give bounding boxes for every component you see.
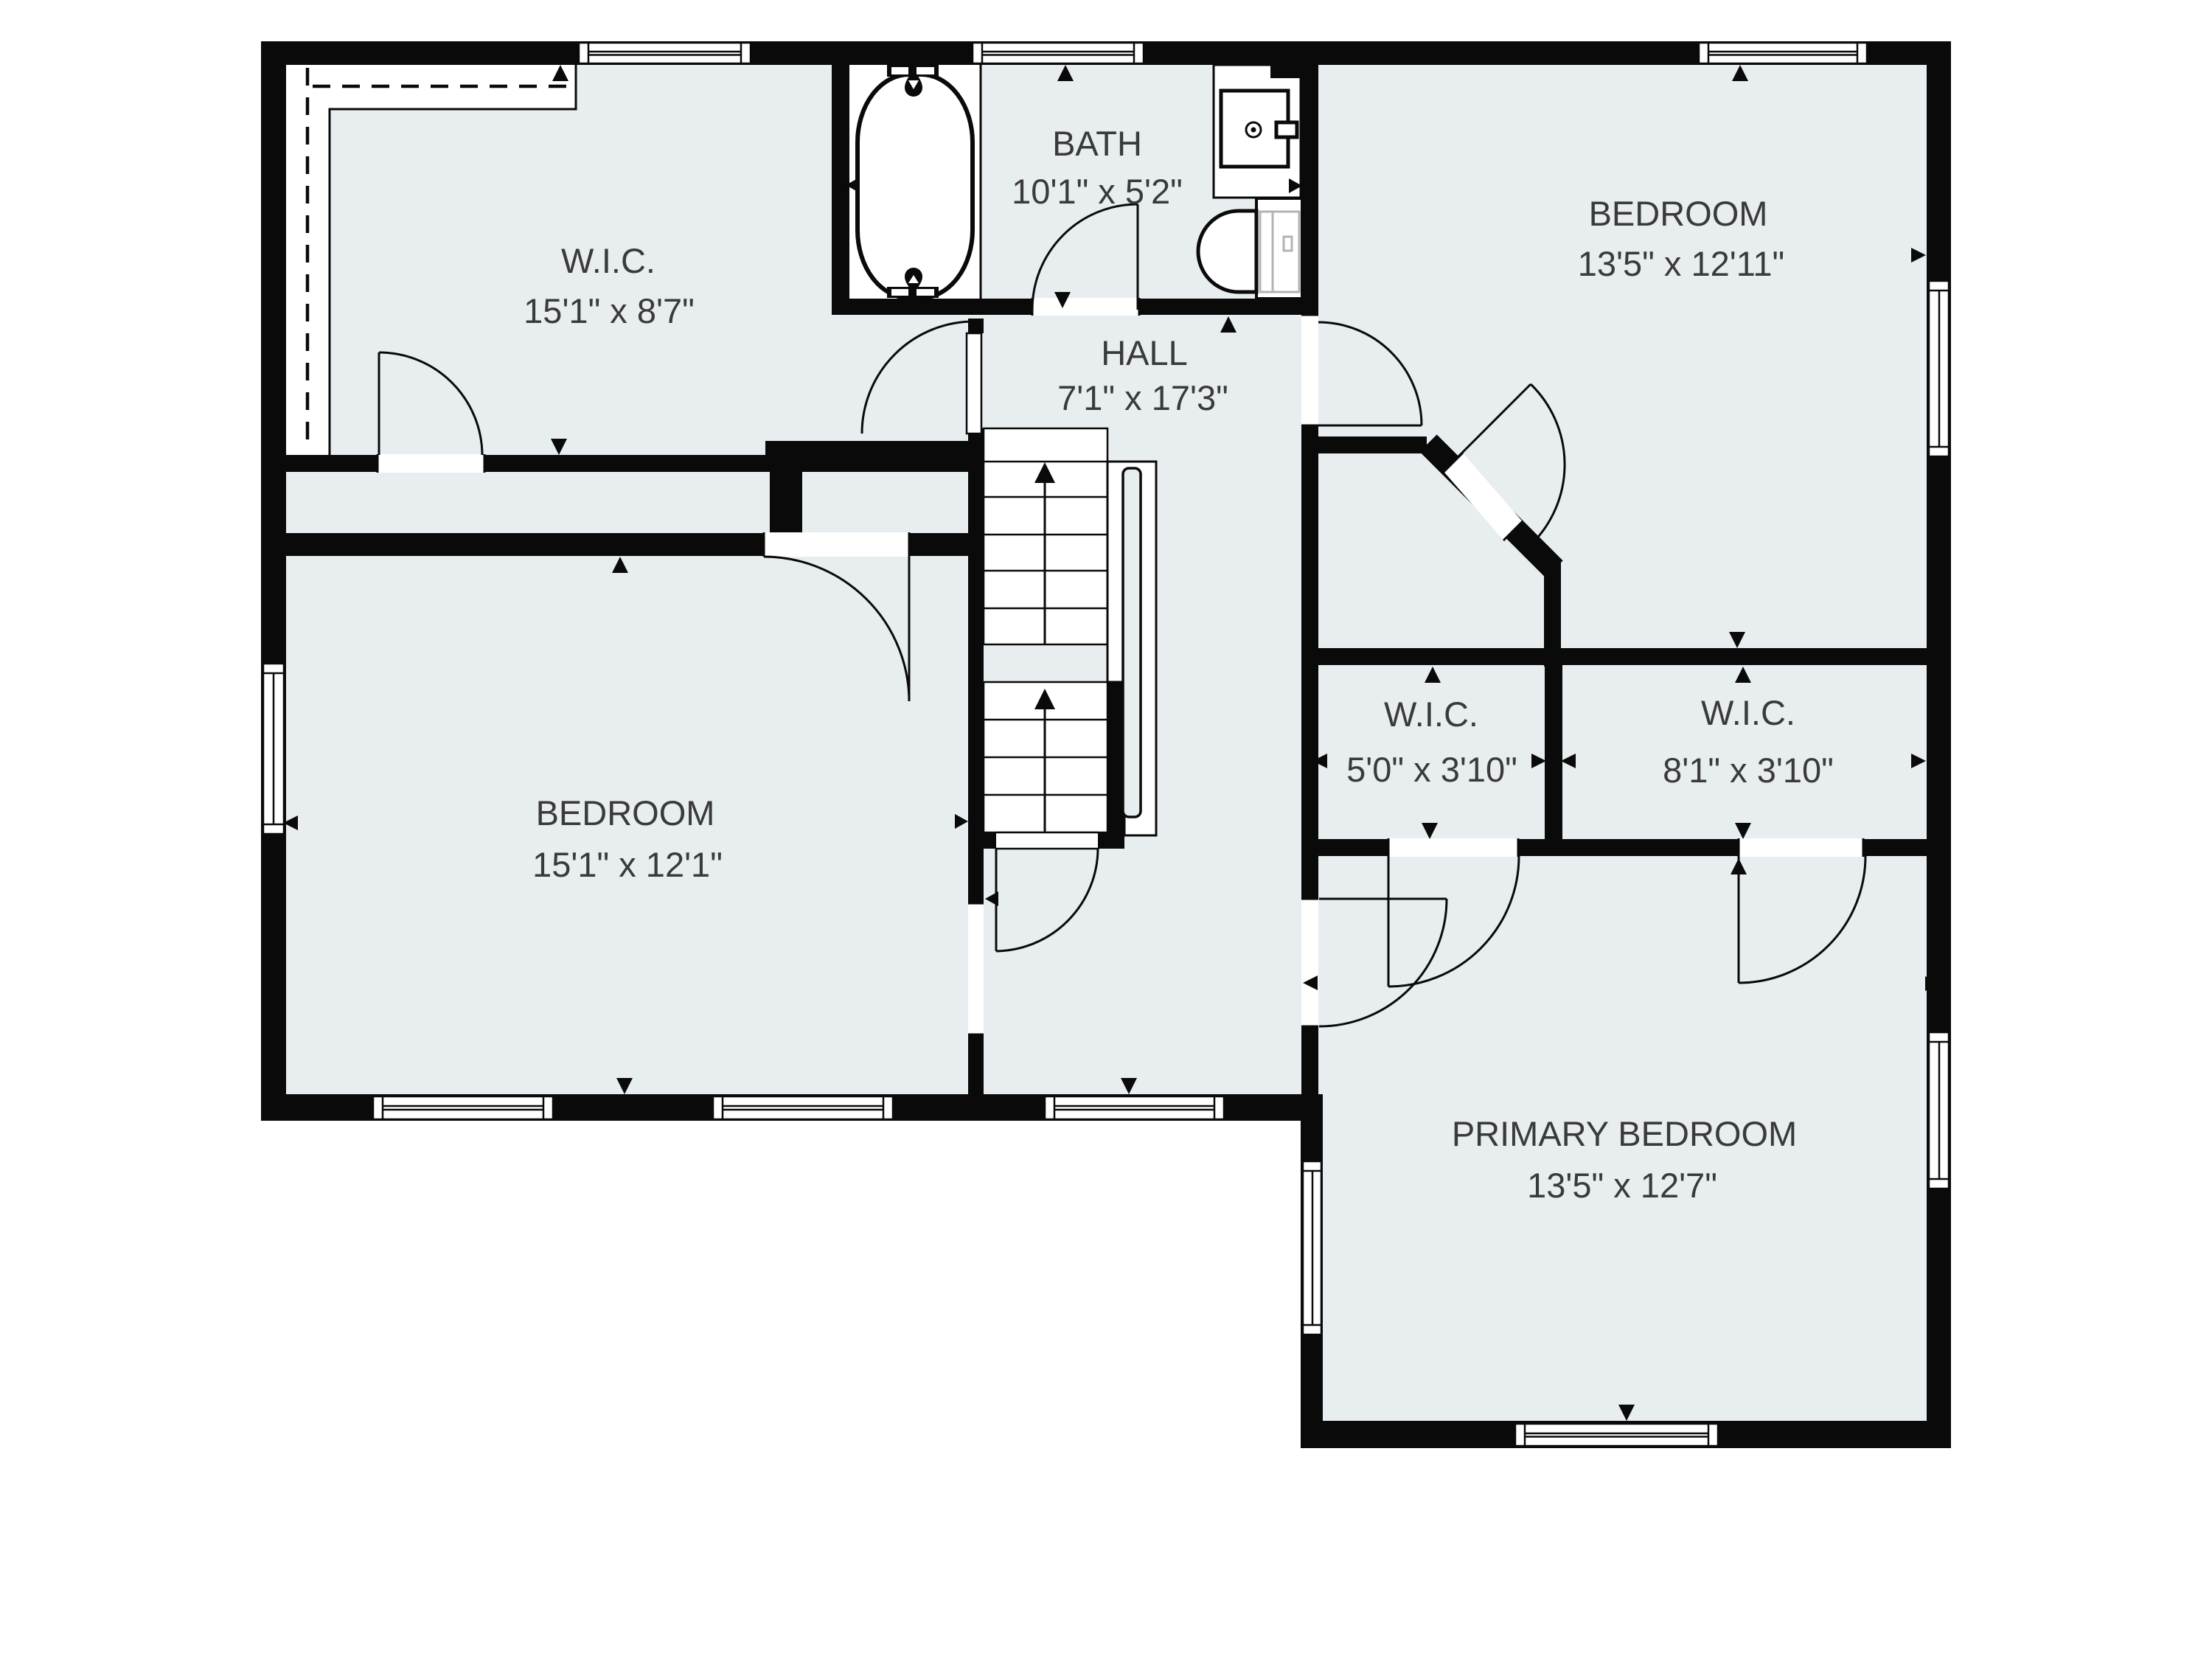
svg-text:BATH: BATH <box>1052 124 1142 163</box>
svg-text:BEDROOM: BEDROOM <box>536 793 715 832</box>
svg-text:15'1" x 8'7": 15'1" x 8'7" <box>524 291 695 330</box>
svg-text:8'1" x 3'10": 8'1" x 3'10" <box>1663 751 1834 790</box>
svg-text:W.I.C.: W.I.C. <box>1384 695 1478 734</box>
svg-text:W.I.C.: W.I.C. <box>561 241 655 280</box>
svg-text:HALL: HALL <box>1101 333 1188 372</box>
svg-text:7'1" x 17'3": 7'1" x 17'3" <box>1057 378 1228 417</box>
svg-text:13'5" x 12'11": 13'5" x 12'11" <box>1578 244 1784 283</box>
svg-text:13'5" x 12'7": 13'5" x 12'7" <box>1527 1166 1717 1205</box>
svg-text:15'1" x 12'1": 15'1" x 12'1" <box>532 845 723 884</box>
svg-text:W.I.C.: W.I.C. <box>1701 693 1795 732</box>
svg-text:BEDROOM: BEDROOM <box>1589 194 1768 233</box>
svg-text:5'0" x 3'10": 5'0" x 3'10" <box>1346 750 1517 789</box>
svg-text:10'1" x 5'2": 10'1" x 5'2" <box>1012 172 1183 211</box>
svg-text:PRIMARY BEDROOM: PRIMARY BEDROOM <box>1452 1114 1797 1153</box>
